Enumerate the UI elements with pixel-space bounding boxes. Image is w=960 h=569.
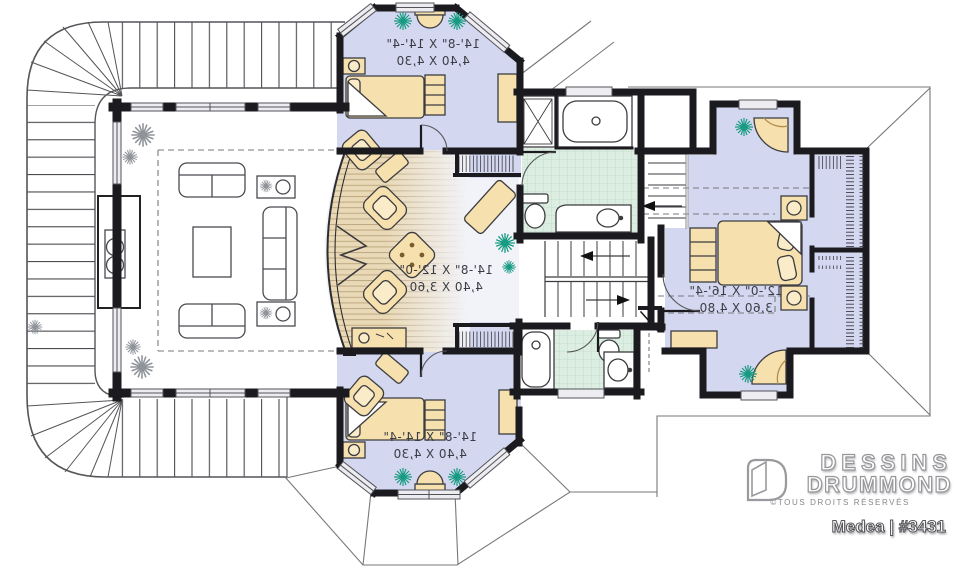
deck-boards-top bbox=[113, 22, 345, 88]
brand-name-line1: DESSINS bbox=[820, 452, 952, 474]
master-dormer-bottom-window bbox=[741, 391, 777, 400]
brand-name-line2: DRUMMOND bbox=[807, 474, 952, 496]
vanity-sink bbox=[556, 205, 631, 232]
porch-roof-outline bbox=[285, 477, 657, 565]
sofa-right bbox=[263, 207, 297, 300]
bathroom-bottom-window bbox=[558, 389, 604, 398]
family-room-dim-imperial: 14'-8" X 12'-0" bbox=[399, 263, 493, 277]
floor-plan: 14'-8" X 14'-4" 4,40 X 4,30 14'-8" X 12'… bbox=[0, 0, 960, 569]
copyright-text: ©TOUS DROITS RÉSERVÉS bbox=[770, 498, 910, 507]
nightstand-top bbox=[781, 196, 807, 220]
closet-rod-bedroom-top bbox=[459, 153, 515, 173]
master-bedroom-dim-metric: 3,60 X 4,80 bbox=[699, 301, 773, 315]
loveseat-bottom bbox=[179, 304, 245, 338]
bed bbox=[718, 221, 802, 285]
nightstand bbox=[343, 442, 365, 458]
deck-corner-fan-bottom bbox=[27, 400, 122, 477]
closet-rod-master-2 bbox=[846, 256, 864, 348]
bathroom-top-window bbox=[566, 87, 612, 96]
staircase-main bbox=[545, 241, 648, 317]
stair-arrow-left bbox=[642, 201, 682, 211]
master-dormer-top-window bbox=[739, 100, 777, 109]
desk bbox=[352, 328, 406, 348]
bed bbox=[346, 76, 424, 118]
staircase-side bbox=[642, 153, 688, 229]
door-logo-icon bbox=[738, 452, 790, 506]
shower bbox=[521, 96, 555, 147]
plant-icon bbox=[130, 355, 153, 378]
stair-rail bbox=[545, 277, 648, 282]
nightstand bbox=[343, 58, 365, 74]
deck-corner-fan-top bbox=[27, 22, 122, 96]
master-bedroom-dim-imperial: 12'-0" X 16'-4" bbox=[689, 284, 783, 298]
plant-icon bbox=[125, 339, 140, 354]
plant-icon bbox=[131, 123, 154, 146]
brand-text: DESSINS DRUMMOND bbox=[807, 452, 952, 496]
dresser-left bbox=[690, 228, 716, 282]
coffee-table bbox=[193, 227, 231, 277]
closet-rod-master-1 bbox=[846, 156, 864, 248]
brand-row: DESSINS DRUMMOND bbox=[807, 452, 952, 496]
brand-watermark: DESSINS DRUMMOND ©TOUS DROITS RÉSERVÉS M… bbox=[738, 452, 952, 564]
roof-hip-top-right bbox=[865, 88, 930, 150]
bedroom-bottom-dim-metric: 4,40 X 4,30 bbox=[393, 447, 467, 461]
roof-hip-bottom-right bbox=[866, 351, 930, 415]
bedroom-top-dim-metric: 4,40 X 4,30 bbox=[396, 54, 470, 68]
vanity-sink bbox=[604, 352, 634, 388]
porch-roof-top bbox=[516, 21, 614, 97]
bathtub bbox=[518, 328, 554, 391]
plant-icon bbox=[122, 149, 137, 164]
dresser bbox=[425, 75, 445, 115]
closet-shelf-master-2 bbox=[816, 256, 842, 269]
loveseat-top bbox=[179, 163, 245, 197]
nightstand-bottom bbox=[781, 286, 807, 310]
plan-title: Medea | #3431 bbox=[832, 517, 946, 537]
bedroom-bottom-dim-imperial: 14'-8" X 14'-4" bbox=[383, 430, 477, 444]
bedroom-top-dim-imperial: 14'-8" X 14'-4" bbox=[386, 37, 480, 51]
deck-boards-bottom bbox=[113, 399, 287, 477]
bathtub bbox=[558, 96, 632, 147]
closet-rod-bedroom-bottom bbox=[459, 327, 515, 347]
family-room-dim-metric: 4,40 X 3,60 bbox=[409, 280, 483, 294]
deck-boards-left bbox=[27, 105, 95, 395]
closet-shelf-master-1 bbox=[816, 156, 842, 169]
dresser-bottom bbox=[671, 331, 717, 348]
wardrobe bbox=[498, 74, 517, 122]
